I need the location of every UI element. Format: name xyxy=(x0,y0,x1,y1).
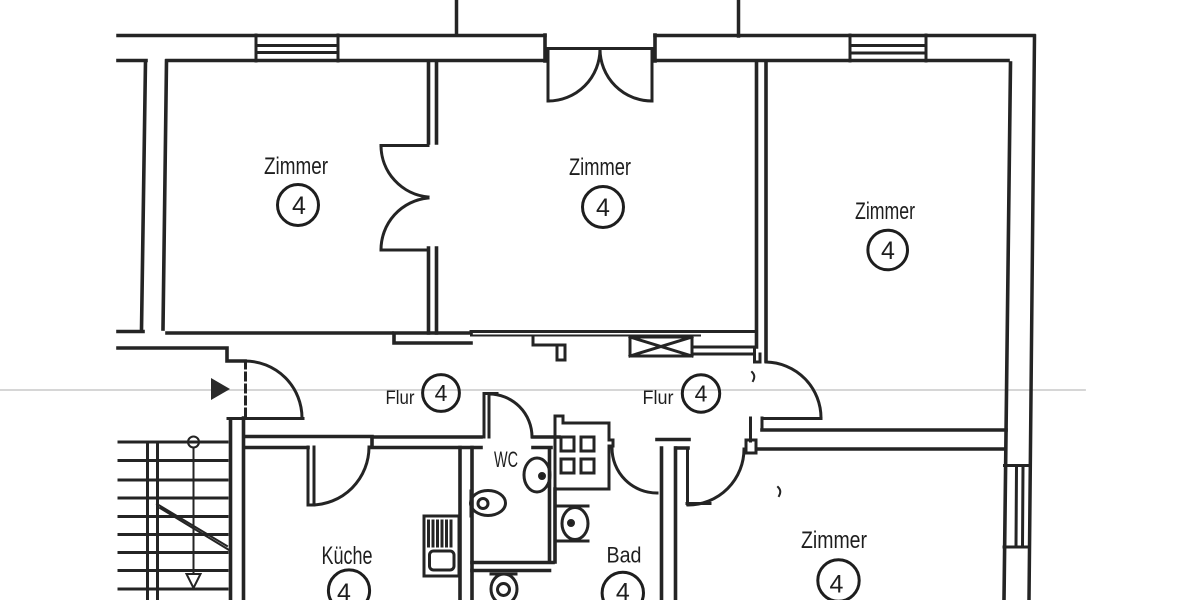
svg-text:4: 4 xyxy=(695,381,708,407)
svg-text:Zimmer: Zimmer xyxy=(801,527,867,554)
svg-text:4: 4 xyxy=(881,237,895,265)
svg-text:Zimmer: Zimmer xyxy=(264,153,328,180)
svg-text:4: 4 xyxy=(337,579,351,600)
svg-text:Zimmer: Zimmer xyxy=(855,198,915,225)
svg-text:4: 4 xyxy=(435,380,448,406)
svg-text:4: 4 xyxy=(292,192,306,220)
svg-text:Zimmer: Zimmer xyxy=(569,154,631,181)
svg-text:Flur: Flur xyxy=(386,388,416,409)
svg-text:WC: WC xyxy=(494,447,518,472)
svg-text:Küche: Küche xyxy=(322,542,373,570)
svg-text:4: 4 xyxy=(830,571,844,599)
svg-text:4: 4 xyxy=(596,194,610,222)
svg-text:Bad: Bad xyxy=(607,543,642,568)
svg-text:4: 4 xyxy=(616,579,630,600)
svg-text:Flur: Flur xyxy=(643,388,675,409)
